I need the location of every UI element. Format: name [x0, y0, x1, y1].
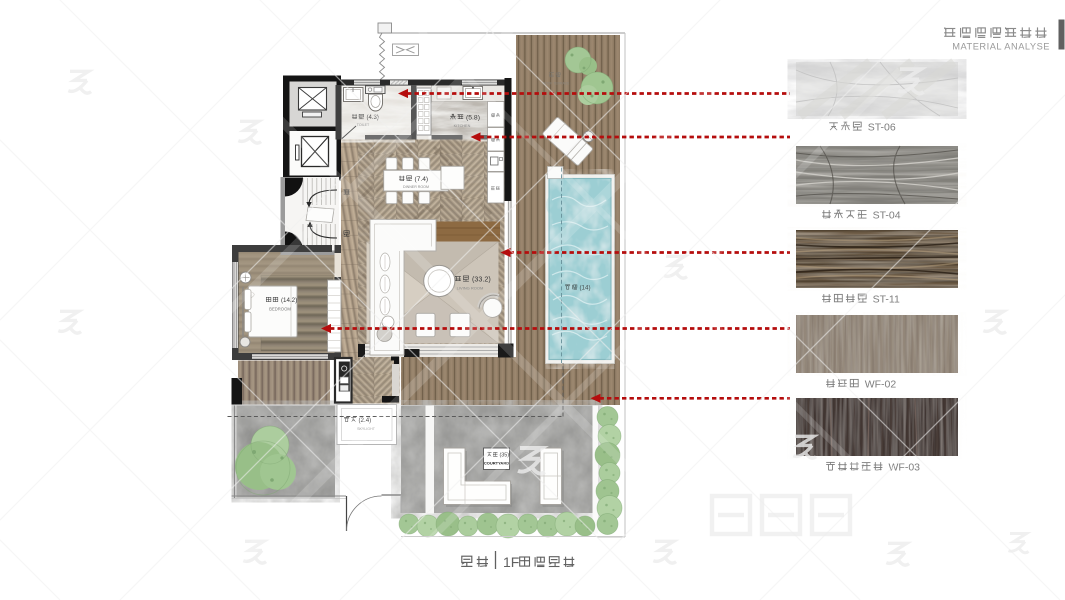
svg-text:DINNER ROOM: DINNER ROOM	[403, 185, 429, 189]
svg-text:BEDROOM: BEDROOM	[269, 307, 291, 312]
svg-text:LIVING ROOM: LIVING ROOM	[457, 286, 484, 291]
svg-text:KITCHEN: KITCHEN	[454, 124, 471, 128]
svg-text:(14): (14)	[580, 285, 591, 292]
svg-text:(7.4): (7.4)	[415, 176, 429, 183]
svg-text:(33.2): (33.2)	[472, 275, 491, 284]
svg-text:ST-06: ST-06	[868, 122, 896, 134]
svg-text:ROOF TERRACE: ROOF TERRACE	[543, 82, 571, 86]
svg-text:ST-04: ST-04	[873, 210, 901, 222]
svg-text:(14.2): (14.2)	[281, 297, 297, 304]
svg-text:MATERIAL ANALYSE: MATERIAL ANALYSE	[952, 42, 1050, 52]
svg-text:TOILET: TOILET	[357, 123, 370, 127]
svg-text:ST-11: ST-11	[873, 294, 900, 306]
svg-text:WF-02: WF-02	[865, 379, 897, 391]
svg-text:(5.8): (5.8)	[466, 115, 480, 122]
svg-text:(4.3): (4.3)	[367, 115, 379, 121]
svg-text:1F: 1F	[503, 554, 519, 570]
